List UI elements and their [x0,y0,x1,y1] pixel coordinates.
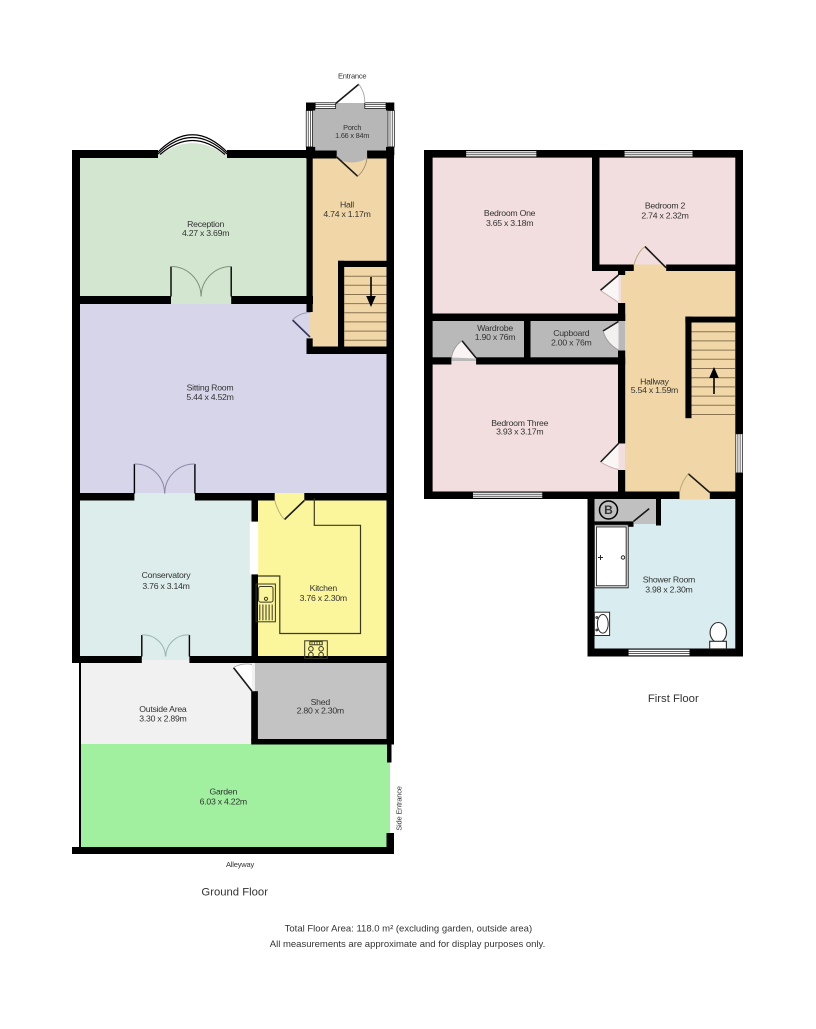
svg-text:Conservatory: Conservatory [142,570,192,580]
svg-text:3.98 x 2.30m: 3.98 x 2.30m [645,584,692,594]
svg-text:Alleyway: Alleyway [226,860,254,869]
svg-text:Total Floor Area: 118.0 m² (ex: Total Floor Area: 118.0 m² (excluding ga… [285,923,533,934]
svg-text:Sitting Room: Sitting Room [187,383,234,393]
svg-text:Ground Floor: Ground Floor [201,886,268,898]
svg-text:4.74 x 1.17m: 4.74 x 1.17m [323,209,370,219]
svg-text:Side Entrance: Side Entrance [395,786,404,831]
svg-text:3.76 x 3.14m: 3.76 x 3.14m [142,581,189,591]
svg-text:Kitchen: Kitchen [310,583,338,593]
svg-text:3.76 x 2.30m: 3.76 x 2.30m [300,593,347,603]
svg-text:2.74 x 2.32m: 2.74 x 2.32m [641,210,688,220]
svg-text:1.90 x 76m: 1.90 x 76m [475,332,515,342]
svg-text:Bedroom 2: Bedroom 2 [645,201,686,211]
svg-text:Hall: Hall [340,199,354,209]
svg-text:All measurements are approxima: All measurements are approximate and for… [270,939,545,950]
svg-text:Entrance: Entrance [338,72,366,81]
svg-text:4.27 x 3.69m: 4.27 x 3.69m [182,228,229,238]
svg-text:6.03 x 4.22m: 6.03 x 4.22m [200,797,247,807]
svg-text:First Floor: First Floor [648,693,699,705]
svg-text:2.80 x 2.30m: 2.80 x 2.30m [297,706,344,716]
svg-text:Shower Room: Shower Room [643,575,695,585]
svg-text:3.65 x 3.18m: 3.65 x 3.18m [486,218,533,228]
svg-text:5.44 x 4.52m: 5.44 x 4.52m [186,392,233,402]
svg-text:Bedroom One: Bedroom One [484,208,536,218]
svg-text:1.66 x 84m: 1.66 x 84m [335,131,369,140]
svg-text:2.00 x 76m: 2.00 x 76m [551,337,591,347]
svg-text:3.30 x 2.89m: 3.30 x 2.89m [139,714,186,724]
svg-text:3.93 x 3.17m: 3.93 x 3.17m [496,427,543,437]
svg-text:5.54 x 1.59m: 5.54 x 1.59m [631,385,678,395]
svg-text:B: B [604,503,613,517]
svg-text:Garden: Garden [210,787,238,797]
